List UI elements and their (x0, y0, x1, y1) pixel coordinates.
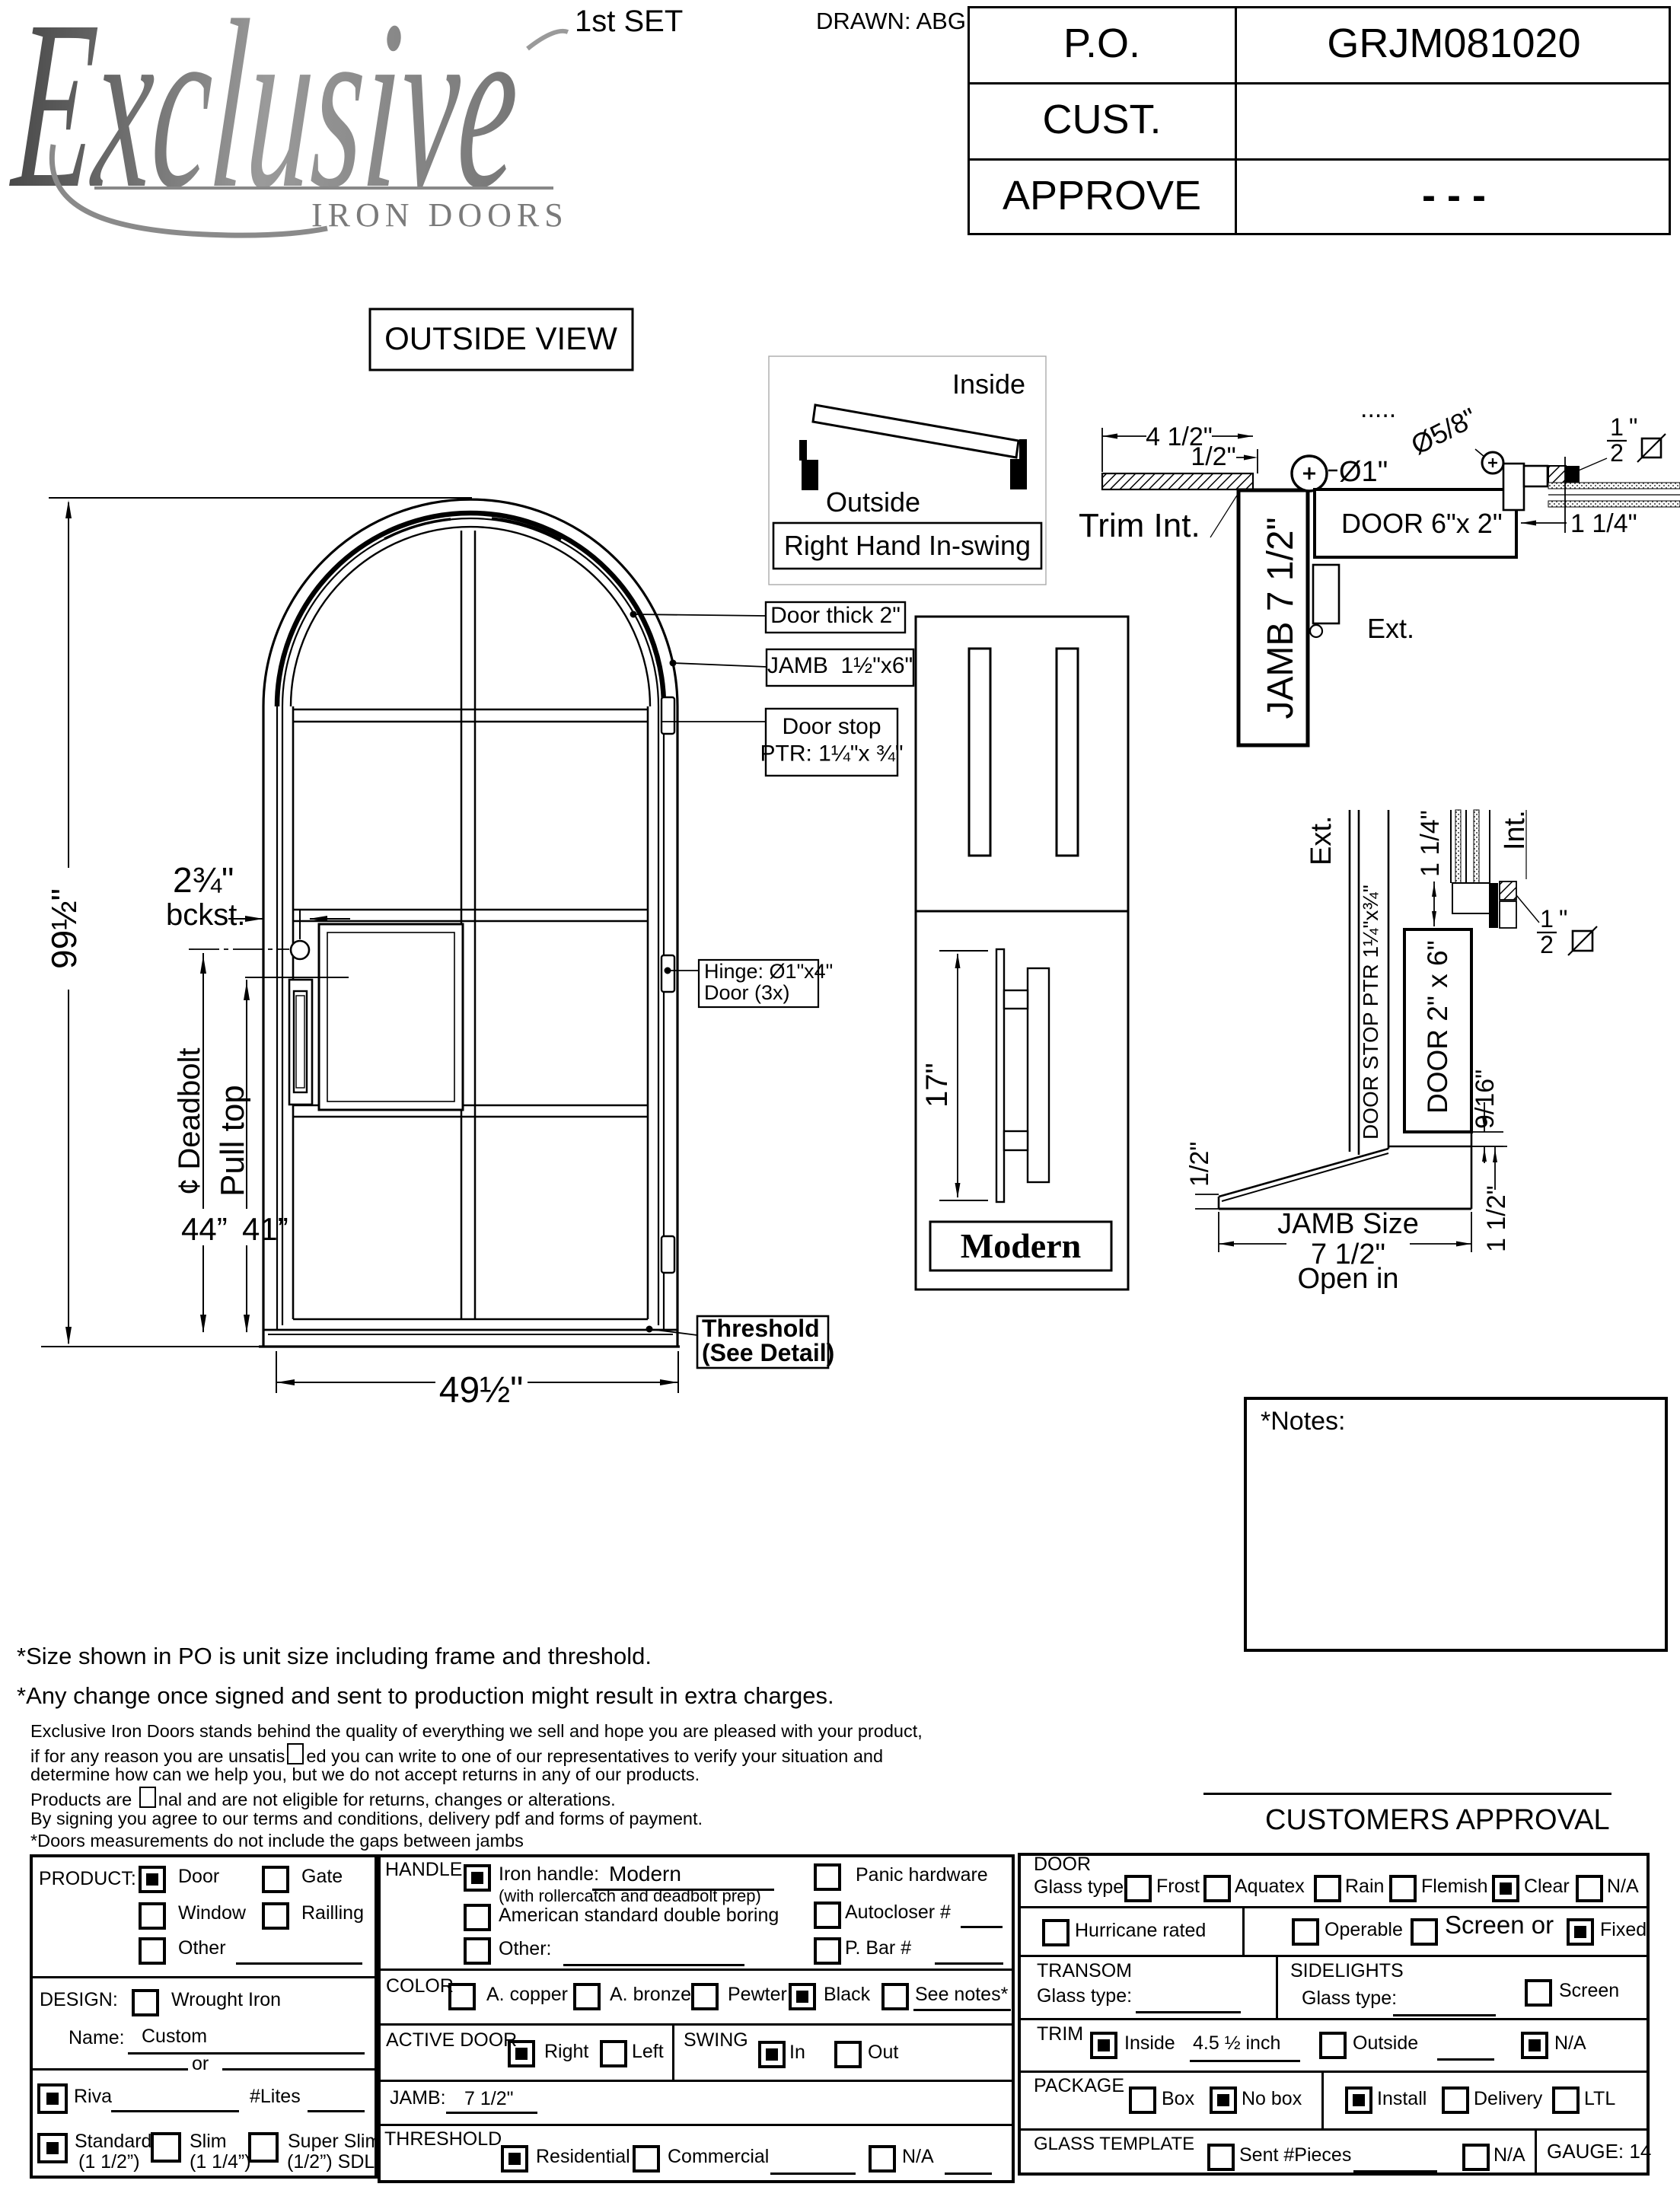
svg-text:1 1/4": 1 1/4" (1570, 509, 1637, 538)
svg-text:Door (3x): Door (3x) (704, 981, 790, 1004)
svg-text:Outside: Outside (826, 486, 920, 518)
svg-text:44”: 44” (181, 1211, 228, 1247)
svg-text:41”: 41” (242, 1211, 289, 1247)
svg-text:Hinge: Ø1"x4": Hinge: Ø1"x4" (704, 960, 833, 983)
svg-text:¢ Deadbolt: ¢ Deadbolt (173, 1048, 206, 1195)
svg-text:": " (1559, 905, 1567, 932)
svg-text:DOOR STOP PTR 1¼"x¾": DOOR STOP PTR 1¼"x¾" (1359, 885, 1382, 1140)
svg-text:Door thick 2": Door thick 2" (770, 603, 901, 628)
svg-text:1: 1 (1610, 413, 1624, 441)
svg-text:17": 17" (920, 1063, 954, 1108)
svg-text:Open in: Open in (1297, 1263, 1398, 1295)
svg-text:1/2": 1/2" (1185, 1142, 1214, 1187)
svg-text:49½": 49½" (439, 1370, 523, 1411)
svg-text:Right Hand In-swing: Right Hand In-swing (784, 530, 1031, 561)
svg-text:(See Detail): (See Detail) (702, 1339, 834, 1366)
svg-text:2¾": 2¾" (173, 860, 234, 900)
svg-text:Ext.: Ext. (1367, 613, 1414, 644)
svg-text:Inside: Inside (952, 368, 1025, 400)
svg-text:JAMB 7 1/2": JAMB 7 1/2" (1261, 517, 1301, 719)
svg-text:Ext.: Ext. (1305, 816, 1337, 866)
svg-text:DOOR 6"x 2": DOOR 6"x 2" (1341, 508, 1503, 539)
svg-text:1: 1 (1540, 905, 1554, 932)
svg-text:Ø1": Ø1" (1339, 456, 1388, 488)
svg-text:99½": 99½" (44, 888, 84, 969)
svg-text:bckst.: bckst. (166, 898, 245, 932)
svg-text:1 1/4": 1 1/4" (1416, 810, 1445, 877)
svg-text:Pull top: Pull top (214, 1085, 251, 1197)
svg-text:Trim Int.: Trim Int. (1079, 507, 1200, 544)
svg-text:": " (1629, 413, 1637, 441)
svg-text:2: 2 (1540, 931, 1554, 958)
svg-text:PTR: 1¼"x ¾": PTR: 1¼"x ¾" (760, 741, 903, 767)
svg-text:OUTSIDE VIEW: OUTSIDE VIEW (384, 320, 617, 356)
svg-text:2: 2 (1610, 439, 1624, 467)
svg-text:JAMB 1½"x6": JAMB 1½"x6" (767, 653, 913, 678)
svg-text:DOOR 2" x 6": DOOR 2" x 6" (1422, 940, 1453, 1114)
svg-text:Door stop: Door stop (782, 714, 881, 739)
svg-text:Ø5/8": Ø5/8" (1406, 401, 1482, 461)
svg-text:IRON DOORS: IRON DOORS (311, 196, 569, 234)
svg-text:Threshold: Threshold (702, 1315, 820, 1342)
svg-text:Modern: Modern (961, 1226, 1081, 1265)
svg-text:JAMB Size: JAMB Size (1277, 1208, 1419, 1240)
svg-text:.....: ..... (1360, 394, 1396, 423)
svg-text:1 1/2": 1 1/2" (1482, 1185, 1511, 1252)
svg-text:1/2": 1/2" (1191, 442, 1235, 471)
